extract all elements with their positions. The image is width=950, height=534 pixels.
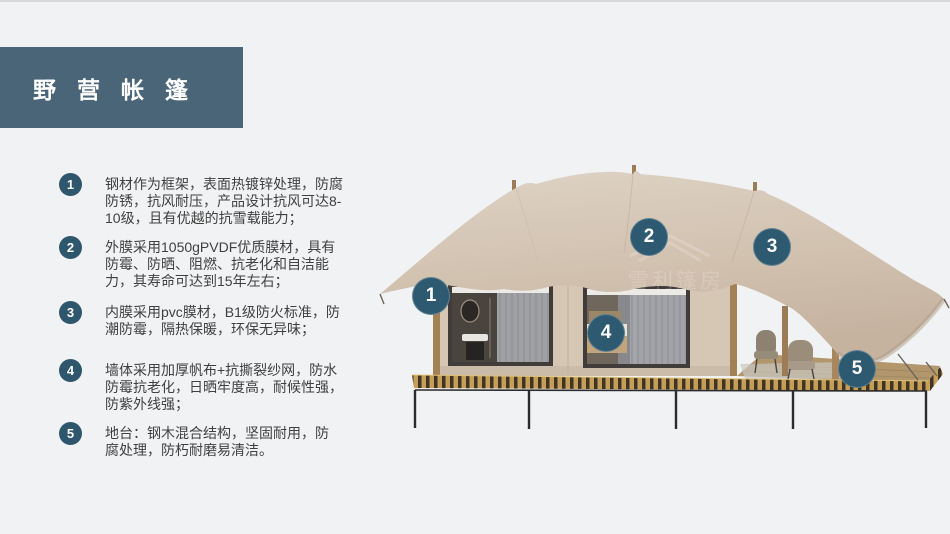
corner-post-right: [730, 281, 737, 376]
feature-badge-4: 4: [59, 359, 82, 382]
feature-text-1: 钢材作为框架，表面热镀锌处理，防腐 防锈，抗风耐压，产品设计抗风可达8- 10级…: [105, 176, 367, 227]
feature-item-5: 5 地台：钢木混合结构，坚固耐用，防 腐处理，防朽耐磨易清洁。: [59, 425, 367, 459]
feature-badge-3: 3: [59, 301, 82, 324]
feature-item-3: 3 内膜采用pvc膜材，B1级防火标准，防 潮防霉，隔热保暖，环保无异味；: [59, 304, 367, 338]
feature-item-2: 2 外膜采用1050gPVDF优质膜材，具有 防霉、防晒、阻燃、抗老化和自洁能 …: [59, 239, 367, 290]
feature-badge-5: 5: [59, 422, 82, 445]
feature-text-4: 墙体采用加厚帆布+抗撕裂纱网，防水 防霉抗老化，日晒牢度高，耐候性强， 防紫外线…: [105, 362, 367, 413]
feature-text-3: 内膜采用pvc膜材，B1级防火标准，防 潮防霉，隔热保暖，环保无异味；: [105, 304, 367, 338]
page-title: 野营帐篷: [0, 71, 209, 105]
tent-photo: 雪利篷房 1 2 3 4 5: [378, 158, 950, 448]
feature-text-2: 外膜采用1050gPVDF优质膜材，具有 防霉、防晒、阻燃、抗老化和自洁能 力，…: [105, 239, 367, 290]
window-bathroom: [448, 283, 553, 366]
watermark-text: 雪利篷房: [628, 270, 724, 293]
tent-cabin: [433, 281, 737, 376]
title-banner: 野营帐篷: [0, 47, 243, 128]
feature-item-4: 4 墙体采用加厚帆布+抗撕裂纱网，防水 防霉抗老化，日晒牢度高，耐候性强， 防紫…: [59, 362, 367, 413]
tent-callout-2: 2: [630, 218, 668, 256]
tent-callout-3: 3: [753, 228, 791, 266]
tent-callout-5: 5: [838, 350, 876, 388]
tent-illustration: 雪利篷房: [378, 158, 950, 448]
tent-callout-4: 4: [587, 314, 625, 352]
top-divider: [0, 0, 950, 2]
feature-badge-1: 1: [59, 173, 82, 196]
tent-callout-1: 1: [412, 277, 450, 315]
feature-text-5: 地台：钢木混合结构，坚固耐用，防 腐处理，防朽耐磨易清洁。: [105, 425, 367, 459]
deck-legs: [415, 390, 926, 429]
feature-badge-2: 2: [59, 236, 82, 259]
feature-item-1: 1 钢材作为框架，表面热镀锌处理，防腐 防锈，抗风耐压，产品设计抗风可达8- 1…: [59, 176, 367, 227]
